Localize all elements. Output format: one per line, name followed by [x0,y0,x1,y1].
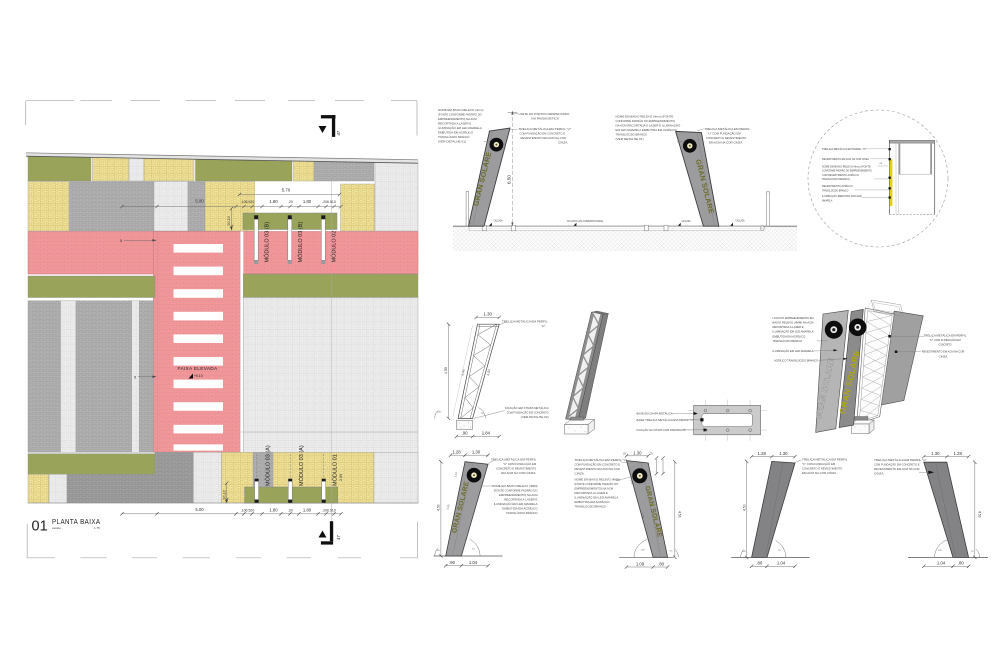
svg-text:1.30: 1.30 [931,451,940,456]
svg-text:REVESTIMENTO EM ACM NA COR: REVESTIMENTO EM ACM NA COR [575,467,621,471]
svg-text:ILUMINAÇÃO EM LED AMARELA: ILUMINAÇÃO EM LED AMARELA [438,125,483,130]
svg-text:105°: 105° [938,550,942,552]
svg-text:EMBUTIDA EM ACRÍLICO: EMBUTIDA EM ACRÍLICO [773,334,807,338]
svg-text:TRELIÇA METÁLICA EM PERFIL "U": TRELIÇA METÁLICA EM PERFIL "U" [874,458,927,462]
svg-text:1.80: 1.80 [269,507,278,512]
svg-text:01: 01 [32,518,48,534]
svg-text:1:75: 1:75 [94,526,100,530]
svg-text:REVESTIMENTO EM ACM NA COR: REVESTIMENTO EM ACM NA COR [521,136,567,140]
svg-text:REVESTIMENTO EM ACM NA COR: REVESTIMENTO EM ACM NA COR [874,467,920,471]
svg-text:NOME EM BAIXO RELEVO (4MM): NOME EM BAIXO RELEVO (4MM) [575,477,621,481]
svg-text:CALÇADA: CALÇADA [735,220,744,223]
svg-text:105°: 105° [742,551,746,553]
svg-text:.03: .03 [879,163,883,165]
svg-text:.90: .90 [462,431,469,436]
svg-text:EM LED AMARELA EMBUTIDA EM ACR: EM LED AMARELA EMBUTIDA EM ACRÍLICO [616,128,678,132]
svg-text:47: 47 [336,535,341,540]
svg-text:FIXAÇÃO EM CHAPA METÁLICA: FIXAÇÃO EM CHAPA METÁLICA [505,405,550,410]
svg-text:TRELIÇA METÁLICA EM PERFIL: TRELIÇA METÁLICA EM PERFIL [924,333,967,337]
svg-text:NA ACM RECORTADA A LASER E ILU: NA ACM RECORTADA A LASER E ILUMINAÇÃO [616,122,681,127]
svg-text:MÓDULO 01: MÓDULO 01 [332,454,339,486]
svg-text:.80: .80 [658,561,665,566]
svg-text:"U" COM FUNDAÇÃO EM: "U" COM FUNDAÇÃO EM [802,461,836,466]
svg-text:.90,10: .90,10 [222,490,226,500]
svg-text:TRANSLÚCIDO BRANCO): TRANSLÚCIDO BRANCO) [822,176,850,181]
svg-text:TRANSLÚCIDO BRANCO: TRANSLÚCIDO BRANCO [773,339,803,343]
svg-text:TRELIÇA METÁLICA EM PERFIL: TRELIÇA METÁLICA EM PERFIL [705,127,751,131]
svg-text:5.00: 5.00 [195,507,204,512]
svg-text:NOME EM BAIXO RELEVO (4mm): NOME EM BAIXO RELEVO (4mm) [438,108,484,112]
svg-text:.206.510: .206.510 [322,508,336,512]
svg-text:+0.10: +0.10 [194,374,203,378]
svg-text:.20: .20 [288,200,293,204]
svg-text:TRELIÇA METÁLICA EM PERFIL "U": TRELIÇA METÁLICA EM PERFIL "U" [822,147,866,151]
svg-text:ILUMINAÇÃO EM LED AMARELA: ILUMINAÇÃO EM LED AMARELA [773,329,814,334]
svg-text:.106.520: .106.520 [241,508,255,512]
svg-text:4.50: 4.50 [677,511,681,518]
svg-text:6.50: 6.50 [507,175,512,184]
svg-text:1.04: 1.04 [777,561,786,566]
svg-text:"U": "U" [541,324,545,328]
svg-text:105°: 105° [437,550,441,552]
svg-text:.106.520: .106.520 [241,200,255,204]
svg-text:TRELIÇA METÁLICA EM PERFIL: TRELIÇA METÁLICA EM PERFIL [491,457,537,461]
svg-text:REVESTIMENTO ACRÍLICO: REVESTIMENTO ACRÍLICO [822,184,853,188]
svg-text:RECORTADA A LASER E: RECORTADA A LASER E [773,325,804,329]
svg-text:PLANTA BAIXA: PLANTA BAIXA [52,517,101,526]
svg-text:(VER DETALHE 01): (VER DETALHE 01) [438,139,466,143]
svg-text:CONCRETO E REVESTIMENTO: CONCRETO E REVESTIMENTO [496,466,537,470]
svg-text:4.50: 4.50 [742,504,746,511]
svg-text:CALÇADA: CALÇADA [681,220,690,223]
svg-text:TRANSLÚCIDO BRANCO: TRANSLÚCIDO BRANCO [438,135,470,139]
svg-text:NOME EM BAIXO RELEVO (4MM): NOME EM BAIXO RELEVO (4MM) [492,484,538,488]
svg-text:TRANSLÚCIDO BRANCO: TRANSLÚCIDO BRANCO [575,504,607,508]
svg-text:TRANSLÚCIDO BRANCO: TRANSLÚCIDO BRANCO [822,187,848,192]
svg-text:NOME EM BAIXO RELEVO (4mm) (FO: NOME EM BAIXO RELEVO (4mm) (FONTE [822,164,871,168]
svg-text:75°: 75° [971,551,974,553]
svg-text:BAIXO RELEVO (4MM) NA ACM: BAIXO RELEVO (4MM) NA ACM [773,321,815,325]
svg-text:75°: 75° [670,551,673,553]
svg-text:1.80: 1.80 [303,507,312,512]
svg-text:EMPREENDIMENTO) NA ACM: EMPREENDIMENTO) NA ACM [499,493,538,497]
svg-text:ILUMINAÇÃO EM LED AMARELA: ILUMINAÇÃO EM LED AMARELA [773,348,814,353]
svg-text:CINZA.: CINZA. [558,140,568,144]
svg-text:TRELIÇA METÁLICA EM PERFIL: TRELIÇA METÁLICA EM PERFIL [502,319,548,323]
svg-text:.80: .80 [958,561,965,566]
svg-text:MÓDULO 03 (A): MÓDULO 03 (A) [298,445,305,486]
svg-text:COM FUNDAÇÃO EM CONCRETO E: COM FUNDAÇÃO EM CONCRETO E [575,461,621,466]
svg-text:(VER DETALHE 02): (VER DETALHE 02) [521,415,549,419]
svg-text:.90: .90 [449,560,456,565]
svg-text:25: 25 [623,451,626,455]
svg-text:BASE TRELIÇA METÁLICA EM PERFI: BASE TRELIÇA METÁLICA EM PERFIL "U" [637,418,694,422]
svg-text:EM ACM NA COR CINZA.: EM ACM NA COR CINZA. [802,471,837,475]
svg-text:(VER DETALHE 01): (VER DETALHE 01) [616,137,644,141]
svg-text:RECORTADA A LASER E: RECORTADA A LASER E [438,121,471,125]
svg-text:"U" COM FUNDAÇÃO EM: "U" COM FUNDAÇÃO EM [708,130,742,135]
svg-text:EMPREENDIMENTO) NA ACM: EMPREENDIMENTO) NA ACM [438,117,477,121]
svg-text:escala: escala [52,526,61,530]
svg-text:5.00: 5.00 [195,198,204,203]
svg-text:ILUMINAÇÃO EMBUTIDA COM LED: ILUMINAÇÃO EMBUTIDA COM LED [822,193,862,198]
svg-text:2.89: 2.89 [339,474,343,481]
svg-text:EMBUTIDA EM ACRÍLICO: EMBUTIDA EM ACRÍLICO [503,506,539,510]
svg-text:CINZA.: CINZA. [575,471,585,475]
svg-text:105°: 105° [437,412,442,414]
svg-text:1.28: 1.28 [954,451,963,456]
svg-text:TRELIÇA METÁLICA EM PERFIL: TRELIÇA METÁLICA EM PERFIL [802,457,848,461]
svg-text:1.30: 1.30 [472,450,481,455]
svg-text:ACRÍLICO TRANSLÚCIDO BRANCO: ACRÍLICO TRANSLÚCIDO BRANCO [774,358,819,362]
svg-text:RECORTADA A LASER E: RECORTADA A LASER E [575,491,608,495]
svg-text:CINZA.: CINZA. [874,471,884,475]
svg-text:1.30: 1.30 [633,450,642,455]
svg-text:1.04: 1.04 [937,561,946,566]
svg-text:25: 25 [650,451,653,455]
svg-text:NOME EM BAIXO RELEVO (4mm) (FO: NOME EM BAIXO RELEVO (4mm) (FONTE [616,114,674,118]
svg-text:75°: 75° [481,413,484,415]
svg-text:.80: .80 [756,561,763,566]
svg-text:FAIXA ELEVADA: FAIXA ELEVADA [178,366,218,371]
svg-text:1.80: 1.80 [303,199,312,204]
svg-text:"U" COM FUNDAÇÃO EM: "U" COM FUNDAÇÃO EM [929,337,961,342]
svg-text:1.28: 1.28 [452,450,461,455]
svg-text:COM FUNDAÇÃO EM CONCRETO E: COM FUNDAÇÃO EM CONCRETO E [874,461,920,466]
svg-text:CONFORME PADRÃO DO EMPREENDIME: CONFORME PADRÃO DO EMPREENDIMENTO) [616,118,676,123]
svg-text:EMPREENDIMENTO) NA ACM: EMPREENDIMENTO) NA ACM [575,486,614,490]
svg-text:.20: .20 [288,508,293,512]
svg-text:4.50: 4.50 [486,369,491,376]
svg-text:(FONTE CONFORME PADRÃO DO: (FONTE CONFORME PADRÃO DO [438,111,482,116]
svg-text:TRANSLÚCIDO BRANCO: TRANSLÚCIDO BRANCO [506,511,538,515]
svg-text:CINZA: CINZA [939,354,948,358]
svg-text:CONCRETO E REVESTIMENTO: CONCRETO E REVESTIMENTO [802,466,843,470]
svg-text:1.09: 1.09 [636,561,645,566]
svg-text:1.04: 1.04 [469,560,478,565]
svg-text:EM ACM NA COR CINZA.: EM ACM NA COR CINZA. [501,471,536,475]
svg-text:CALÇADA: CALÇADA [493,220,502,223]
svg-text:EMBUTIDA EM ACRÍLICO: EMBUTIDA EM ACRÍLICO [575,500,611,504]
svg-text:CONFORME PADRÃO DO EMPREENDIME: CONFORME PADRÃO DO EMPREENDIMENTO) [822,168,872,173]
svg-text:4.50: 4.50 [444,367,448,374]
svg-text:EMBUTIDA EM ACRÍLICO: EMBUTIDA EM ACRÍLICO [438,130,474,134]
svg-text:1.80: 1.80 [269,199,278,204]
svg-text:MÓDULO 03 (A): MÓDULO 03 (A) [265,445,272,486]
svg-text:.206.510: .206.510 [322,200,336,204]
svg-text:4.50: 4.50 [977,511,981,518]
svg-text:CICLOVIA (VIA COMPARTILHADA): CICLOVIA (VIA COMPARTILHADA) [567,220,604,223]
svg-text:1.10: 1.10 [453,471,458,478]
svg-text:LIMITE DO PÓRTICO RESPEITANDO: LIMITE DO PÓRTICO RESPEITANDO [519,111,570,116]
svg-text:REVESTIMENTO EM ACM NA COR CIN: REVESTIMENTO EM ACM NA COR CINZA [822,157,869,161]
svg-text:4.44: 4.44 [461,369,466,376]
svg-text:RECORTADA A LASER E: RECORTADA A LASER E [504,497,537,501]
svg-text:.90,10: .90,10 [227,216,231,226]
svg-text:LOGO DO EMPREENDIMENTO EM: LOGO DO EMPREENDIMENTO EM [773,316,815,320]
svg-text:EM ACM NA COR CINZA: EM ACM NA COR CINZA [709,140,743,144]
svg-text:1.30: 1.30 [484,312,493,317]
svg-text:MÓDULO 03 (B): MÓDULO 03 (B) [297,222,304,263]
svg-text:(FONTE CONFORME PADRÃO DO: (FONTE CONFORME PADRÃO DO [494,487,538,492]
svg-text:MÓDULO 03 (B): MÓDULO 03 (B) [264,222,271,263]
svg-text:75°: 75° [472,549,475,551]
svg-text:(FONTE CONFORME PADRÃO DO: (FONTE CONFORME PADRÃO DO [575,481,619,486]
svg-text:1.84: 1.84 [482,431,491,436]
svg-text:COM FUNDAÇÃO EM CONCRETO E: COM FUNDAÇÃO EM CONCRETO E [520,130,566,135]
svg-text:4.50: 4.50 [437,504,441,511]
svg-text:ILUMINAÇÃO EM LED AMARELA: ILUMINAÇÃO EM LED AMARELA [575,494,620,499]
svg-text:BASE EM CHAPA METÁLICA: BASE EM CHAPA METÁLICA [637,412,674,416]
svg-text:AMARELA: AMARELA [822,198,833,202]
svg-text:"U" COM FUNDAÇÃO EM: "U" COM FUNDAÇÃO EM [503,461,537,466]
svg-text:TRANSLÚCIDO BRANCO: TRANSLÚCIDO BRANCO [616,132,648,136]
svg-text:5.70: 5.70 [282,188,291,193]
svg-text:CONCRETO E REVESTIMENTO: CONCRETO E REVESTIMENTO [706,136,747,140]
svg-text:105°: 105° [641,550,645,552]
svg-text:1.30: 1.30 [779,451,788,456]
svg-text:VIA PAISAGÍSTICA: VIA PAISAGÍSTICA [531,116,560,120]
svg-text:TRELIÇA METÁLICA EM PERFIL "U": TRELIÇA METÁLICA EM PERFIL "U" [519,127,572,131]
svg-text:47: 47 [336,130,341,135]
svg-text:FIXAÇÃO NA CHAPA COM PARABOLTS: FIXAÇÃO NA CHAPA COM PARABOLTS [637,427,686,432]
svg-text:COM FUNDAÇÃO EM CONCRETO: COM FUNDAÇÃO EM CONCRETO [507,410,549,415]
svg-text:COM REVESTIMENTO ACRÍLICO: COM REVESTIMENTO ACRÍLICO [822,173,859,177]
svg-text:1.28: 1.28 [758,451,767,456]
svg-text:75°: 75° [778,550,781,552]
svg-text:3.40: 3.40 [445,504,450,511]
svg-text:TRELIÇA METÁLICA EM PERFIL "U": TRELIÇA METÁLICA EM PERFIL "U" [575,458,628,462]
svg-text:ILUMINAÇÃO EM LED AMARELA: ILUMINAÇÃO EM LED AMARELA [494,501,539,506]
svg-text:REVESTIMENTO EM ACM NA COR: REVESTIMENTO EM ACM NA COR [922,350,965,354]
svg-text:CONCRETO: CONCRETO [938,343,952,347]
